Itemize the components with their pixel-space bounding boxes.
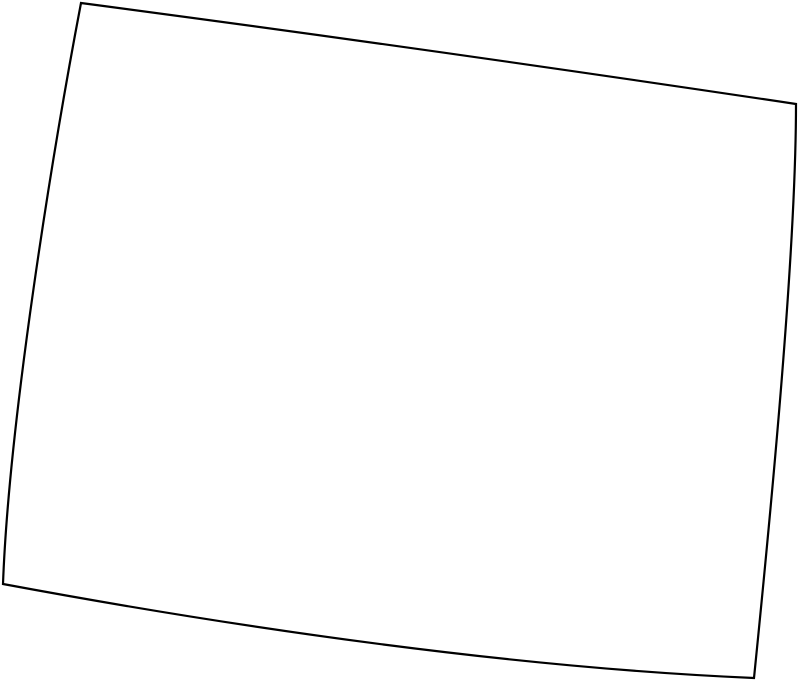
wyoming-outline-shape — [3, 3, 796, 678]
map-canvas — [0, 0, 800, 683]
state-map — [0, 0, 800, 683]
